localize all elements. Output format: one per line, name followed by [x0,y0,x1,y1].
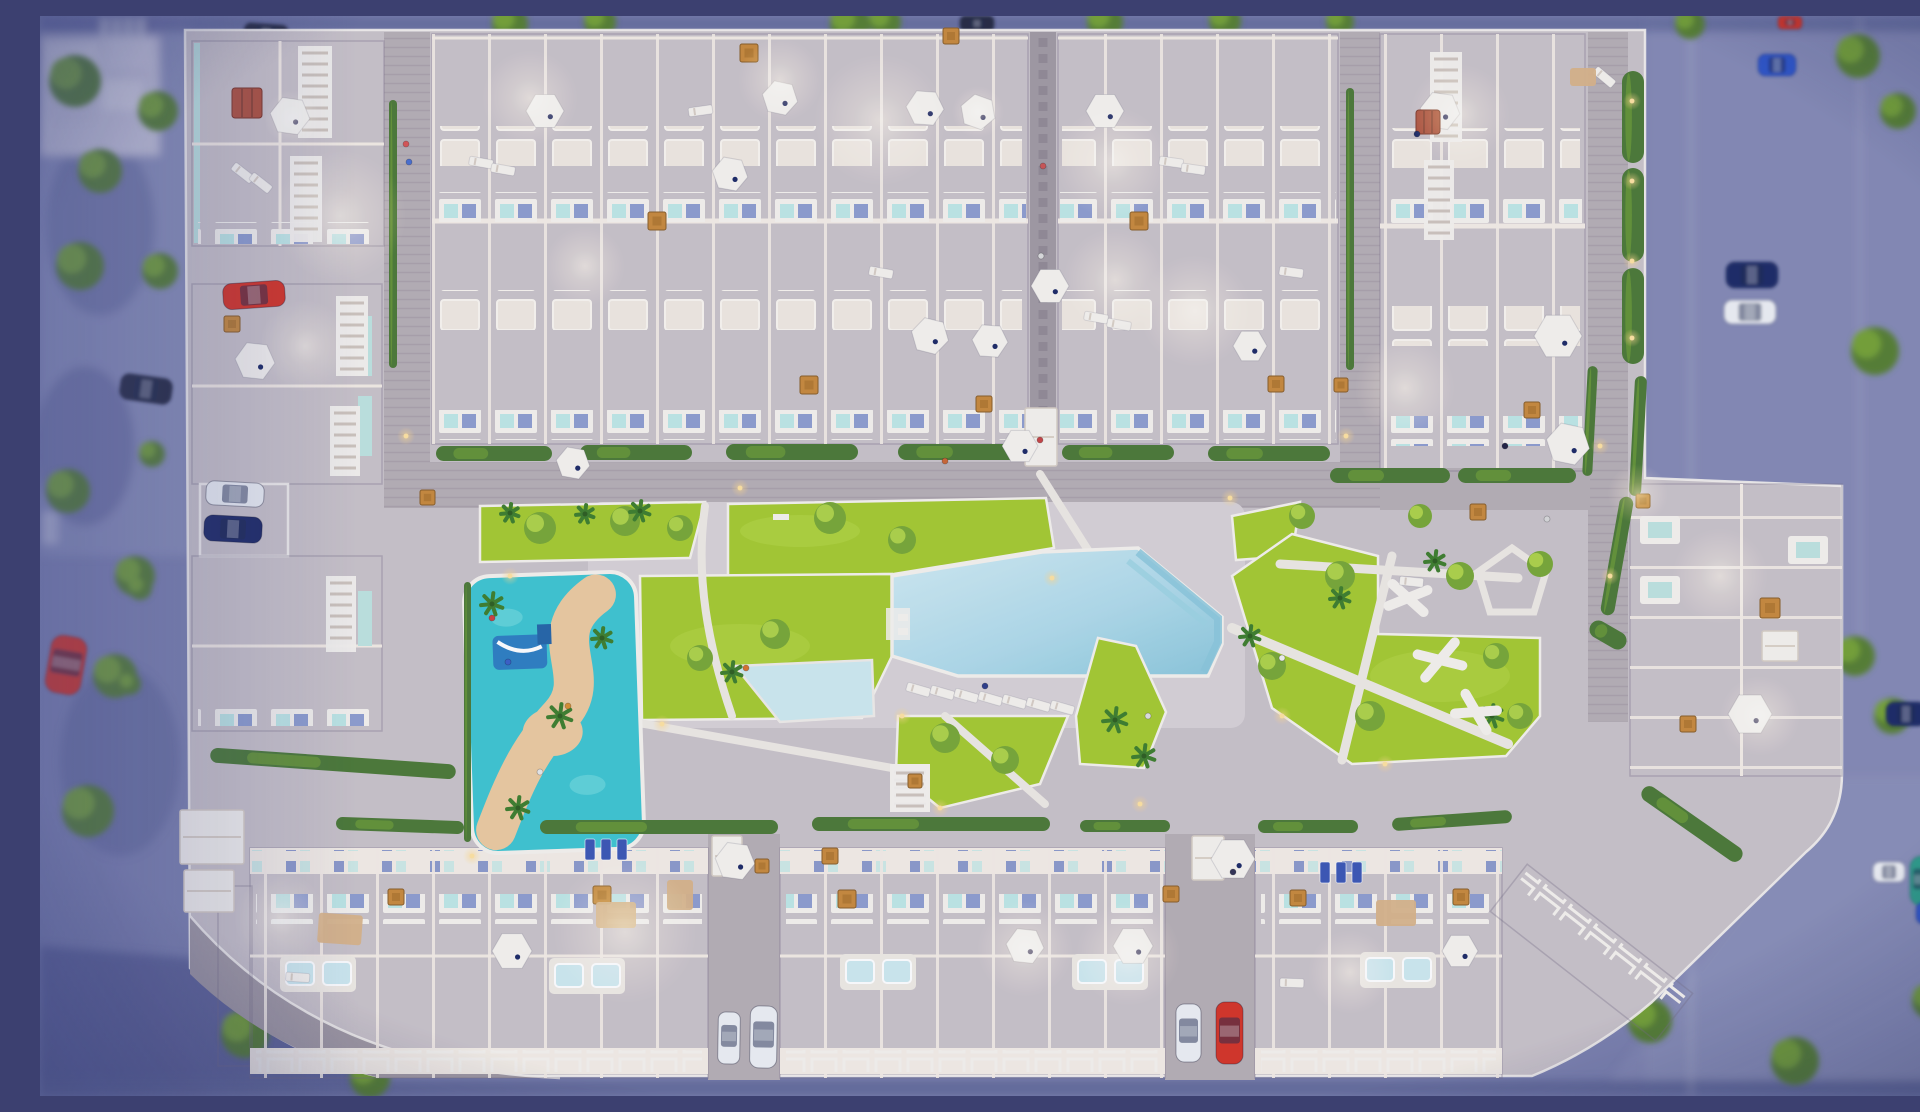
dusk-tint [40,16,1920,1096]
aerial-render: Aerial dusk view of a residential resort… [40,16,1920,1096]
